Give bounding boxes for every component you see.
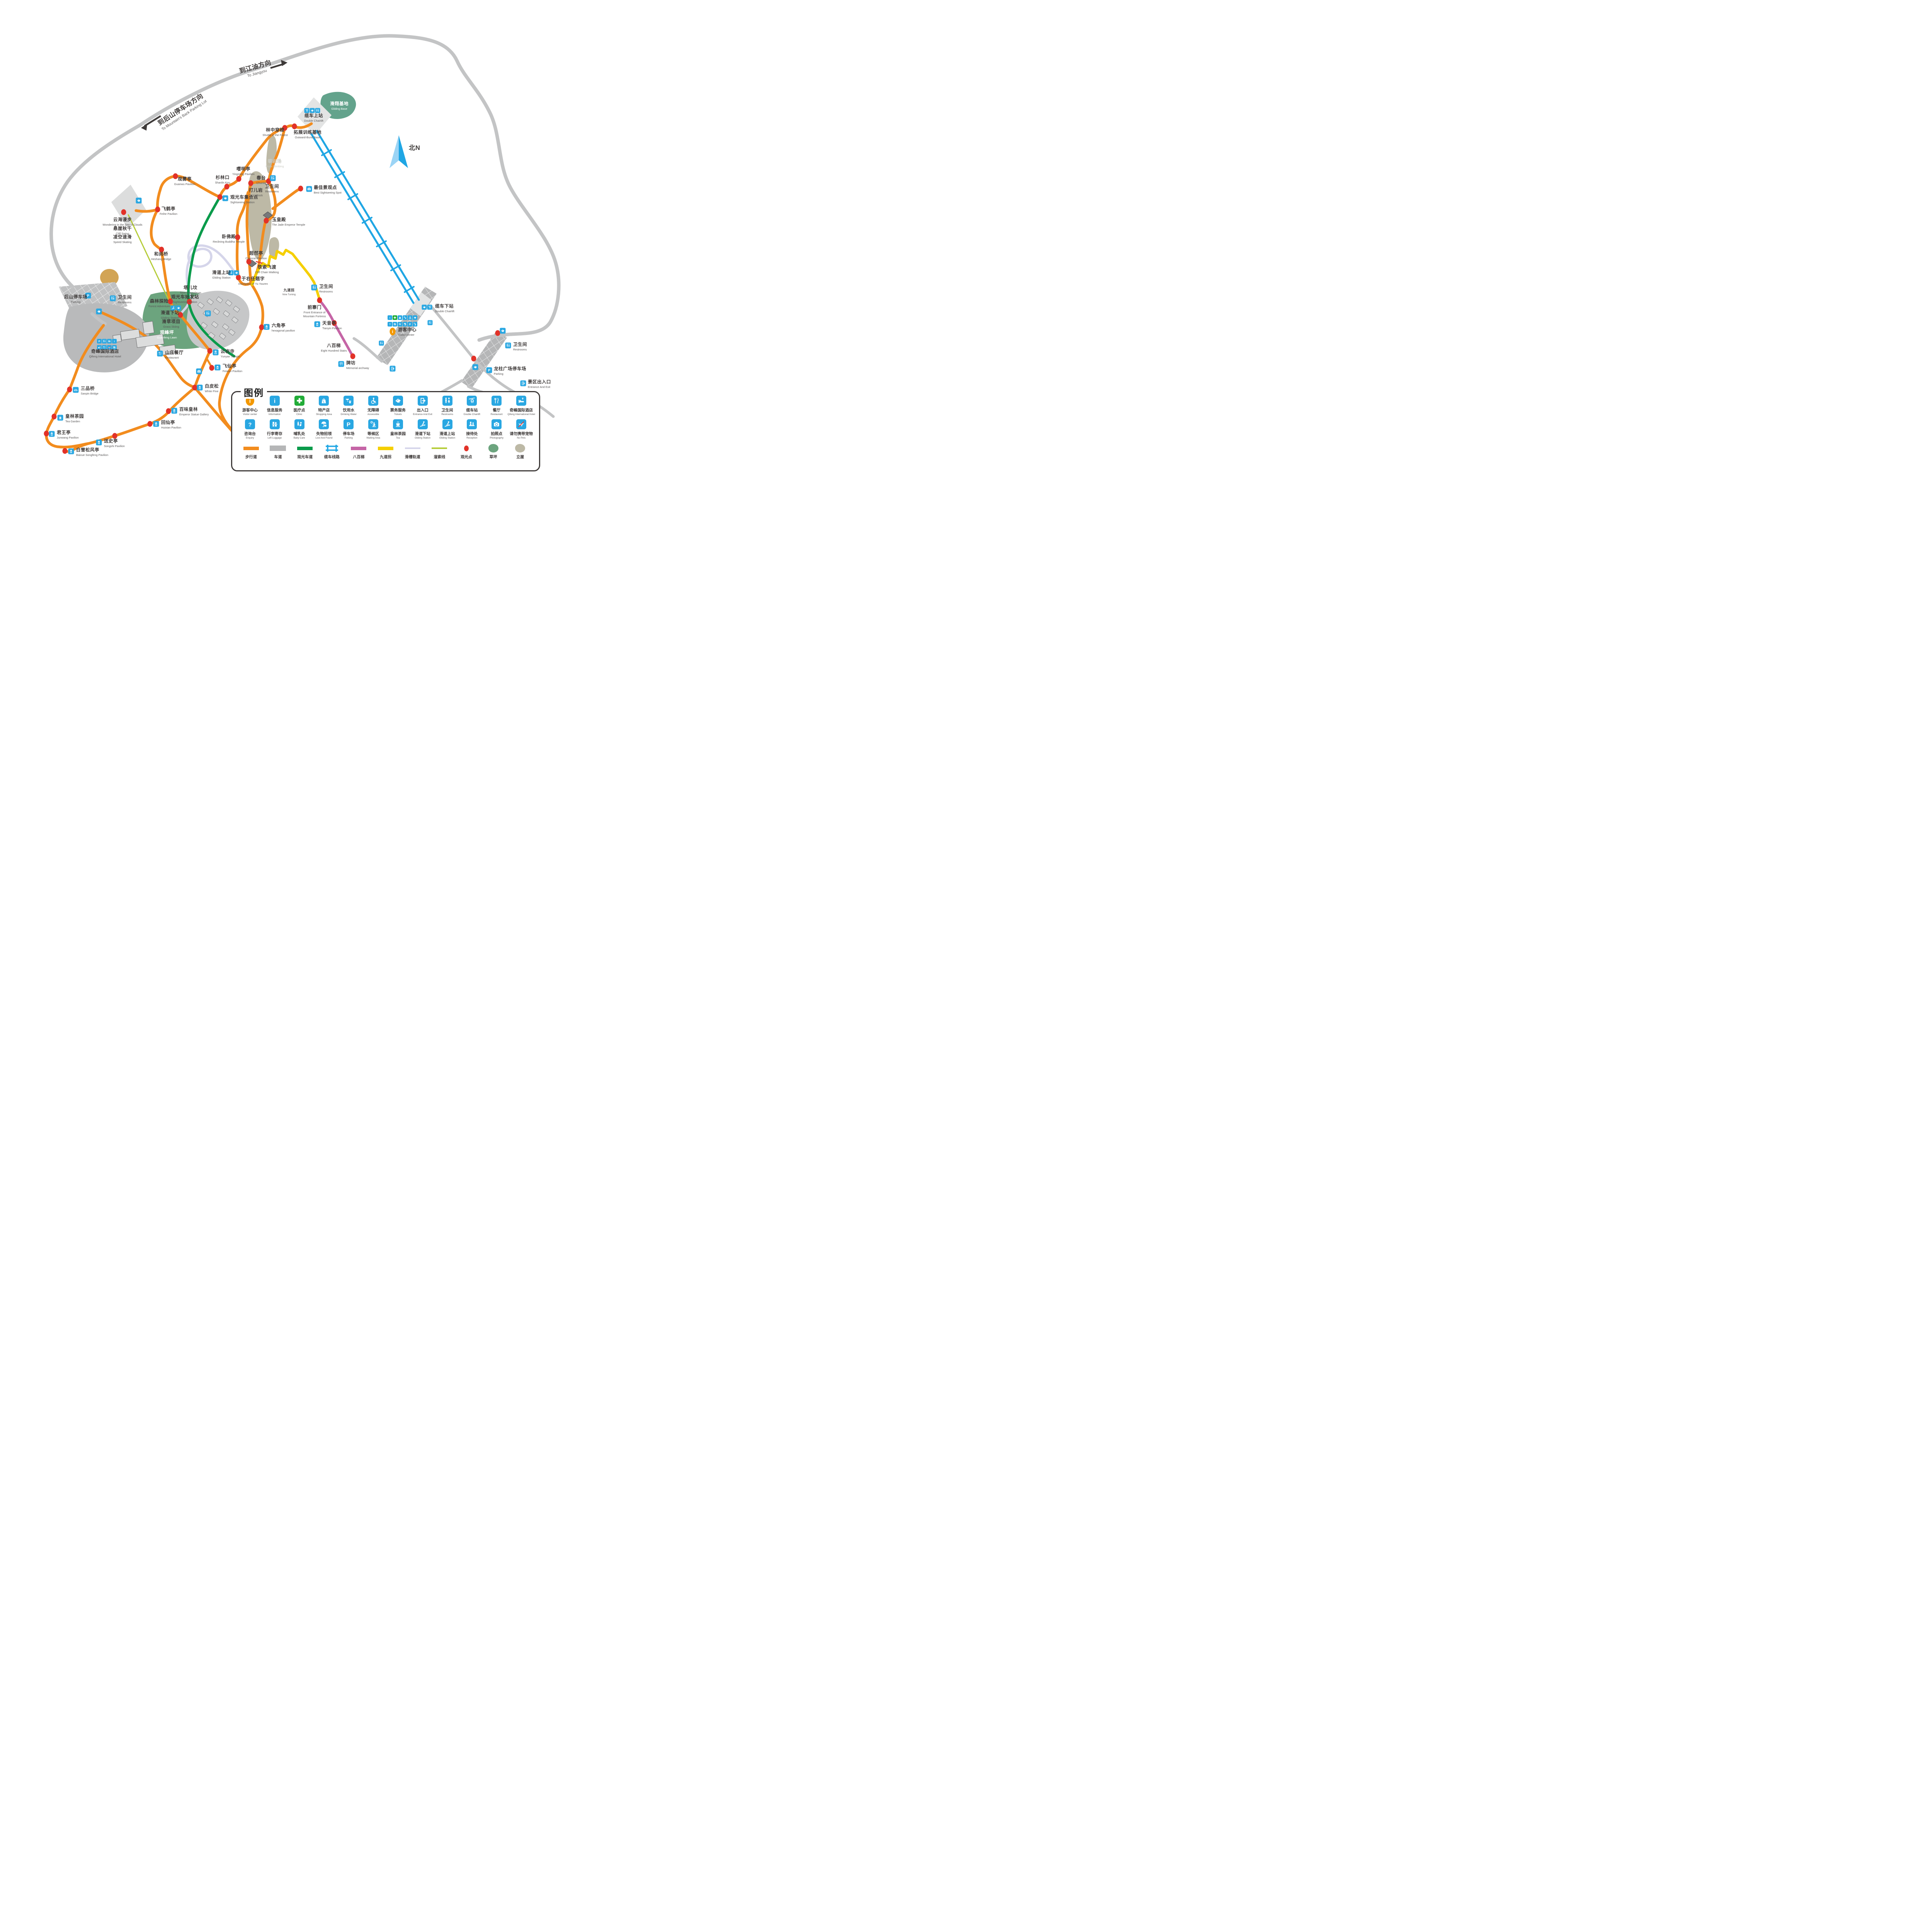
map-label: 滑草项目Grass Skiing [162, 319, 180, 328]
svg-text:杉林口: 杉林口 [216, 175, 230, 180]
restroom-icon[interactable] [505, 343, 511, 349]
map-label: 游客中心Visitor center [398, 327, 417, 337]
map-label: 滑道上站Gliding Station [212, 270, 231, 279]
chairlift-icon[interactable] [427, 305, 432, 310]
sightseeing-spot-dot[interactable] [63, 448, 68, 454]
legend-route-item: 八百梯 [345, 444, 372, 459]
lostfound-icon[interactable] [403, 322, 407, 327]
info-icon[interactable] [388, 315, 392, 320]
map-label: 卧佛殿Reclining Buddha Temple [213, 234, 245, 243]
legend-route-label: 步行道 [245, 454, 257, 459]
svg-text:Huixian Pavilion: Huixian Pavilion [161, 426, 181, 429]
chairlift-icon [467, 396, 477, 406]
svg-text:九道拐: 九道拐 [283, 288, 295, 292]
svg-text:塔儿坟: 塔儿坟 [184, 285, 197, 290]
svg-text:Guanfeng Lawn: Guanfeng Lawn [157, 336, 177, 339]
svg-text:拓展训练基地: 拓展训练基地 [294, 129, 321, 135]
svg-text:嘤明亭: 嘤明亭 [236, 166, 250, 172]
ticket-icon[interactable] [473, 364, 478, 370]
map-label: 六角亭hexagonal pavilion [272, 323, 295, 332]
legend-route-swatch [297, 444, 313, 452]
car-road-paifang-link [354, 338, 382, 361]
svg-text:Cliff Chain Walking: Cliff Chain Walking [255, 270, 279, 274]
svg-text:君王亭: 君王亭 [57, 430, 71, 435]
sightseeing-spot-dot[interactable] [166, 408, 171, 414]
legend-item-label: 游客中心 [242, 407, 258, 413]
svg-text:Ta'er Mausoleum: Ta'er Mausoleum [180, 291, 201, 294]
svg-text:三品桥: 三品桥 [81, 386, 95, 391]
svg-text:回仙亭: 回仙亭 [161, 420, 175, 425]
parking-icon[interactable] [486, 367, 492, 373]
parking-icon[interactable] [97, 339, 102, 344]
map-label: 滑道下站Gliding Station [161, 310, 179, 320]
svg-text:景区出入口: 景区出入口 [527, 379, 551, 384]
sightseeing-spot-dot[interactable] [112, 433, 117, 439]
reception-icon[interactable] [107, 339, 112, 344]
svg-text:牌坊: 牌坊 [346, 360, 355, 366]
reception-icon [467, 419, 477, 429]
svg-text:滑道下站: 滑道下站 [161, 310, 179, 315]
photo-icon[interactable] [306, 186, 312, 192]
legend-item-sublabel: Restrooms [441, 413, 453, 416]
legend-item: 出入口Entrance And Exit [410, 396, 435, 416]
legend-route-swatch [351, 444, 366, 452]
sightseeing-spot-dot[interactable] [192, 385, 197, 391]
legend-route-item: 草坪 [480, 444, 507, 459]
waiting-icon[interactable] [413, 322, 417, 327]
legend-item: 拍照点Photography [484, 419, 509, 439]
legend-route-swatch [488, 444, 498, 452]
legend-item-sublabel: Parking [345, 437, 353, 439]
map-label: 卫生间Restrooms [319, 284, 333, 293]
svg-text:Sanpin Bridge: Sanpin Bridge [81, 392, 99, 395]
map-label: 春台Chuntai [256, 175, 266, 185]
legend-item: 滑道下站Gliding Station [410, 419, 435, 439]
sightseeing-spot-dot[interactable] [67, 387, 72, 393]
svg-text:Mountain Fortress: Mountain Fortress [303, 315, 326, 318]
sightseeing-spot-dot[interactable] [148, 421, 153, 427]
restroom-icon[interactable] [270, 175, 276, 181]
sightseeing-spot-dot[interactable] [209, 365, 214, 371]
pavilion-icon[interactable] [315, 321, 320, 327]
ticket-icon[interactable] [500, 328, 506, 334]
legend-route-item: 立崖 [507, 444, 534, 459]
legend-route-item: 观光点 [453, 444, 480, 459]
legend-item: 行李寄存Left Luggage [262, 419, 287, 439]
sightseeing-spot-dot[interactable] [264, 218, 269, 224]
pavilion-icon[interactable] [215, 365, 221, 371]
tea-icon [393, 419, 403, 429]
legend-item-label: 滑道上站 [440, 430, 455, 436]
chairlift-icon[interactable] [304, 108, 310, 113]
parking-icon[interactable] [408, 322, 412, 327]
legend-item-sublabel: Enquiry [246, 437, 254, 439]
svg-text:后山停车场: 后山停车场 [64, 294, 87, 299]
svg-text:白雪松风亭: 白雪松风亭 [76, 447, 99, 452]
svg-text:Baixue Songfeng Pavilion: Baixue Songfeng Pavilion [76, 453, 108, 457]
ticket-icon[interactable] [96, 309, 102, 315]
glide-icon[interactable] [171, 306, 176, 311]
svg-text:八百梯: 八百梯 [327, 343, 341, 348]
legend-route-item: 观光车道 [291, 444, 318, 459]
map-label: 前寨门Front Entrance ofMountain Fortress [303, 304, 326, 318]
legend-route-swatch [432, 444, 447, 452]
sightseeing-spot-dot[interactable] [471, 356, 476, 362]
map-label: 九道拐Nine Turning [282, 288, 296, 296]
svg-text:飞仙亭: 飞仙亭 [223, 363, 236, 369]
legend-item-label: 医疗点 [294, 407, 305, 413]
legend-item: 缆车站Double Chairlift [459, 396, 484, 416]
legend-row-routes: 步行道车道观光车道 缆车线路八百梯九道拐滑槽轨道溜索线观光点草坪立崖 [232, 444, 539, 459]
legend-route-label: 车道 [274, 454, 282, 459]
map-label: 白雪松风亭Baixue Songfeng Pavilion [76, 447, 108, 457]
legend-route-item: 滑槽轨道 [399, 444, 426, 459]
legend-item: 接待处Reception [459, 419, 484, 439]
map-label: 缆车上站Double Chairlift [304, 113, 323, 122]
legend-item-sublabel: No Pets [517, 437, 526, 439]
legend-route-label: 缆车线路 [324, 454, 340, 459]
map-label: 凌空速滑Speed Skating [113, 234, 132, 244]
restroom-icon [442, 396, 452, 406]
legend-item-label: 票务服务 [390, 407, 406, 413]
question-icon[interactable] [388, 322, 392, 327]
legend-item-sublabel: Accessible [367, 413, 379, 416]
legend-item: 哺乳处Baby Care [287, 419, 312, 439]
restroom-icon[interactable] [205, 311, 211, 316]
sightseeing-spot-dot[interactable] [298, 186, 303, 192]
svg-text:Emperor Statue Gallery: Emperor Statue Gallery [179, 413, 209, 416]
pavilion-icon[interactable] [49, 431, 55, 437]
map-label: 最佳景观点Best Sightseeing Spot [314, 185, 342, 194]
legend-route-item: 九道拐 [372, 444, 399, 459]
sightseeing-spot-dot[interactable] [495, 330, 500, 336]
map-label: 送史亭Songshi Pavilion [104, 438, 125, 448]
svg-text:Shanlin Kou: Shanlin Kou [215, 181, 230, 184]
legend-route-label: 观光车道 [297, 454, 313, 459]
sightseeing-spot-dot[interactable] [218, 194, 223, 200]
legend-route-label: 九道拐 [380, 454, 391, 459]
svg-text:悬崖秋千: 悬崖秋千 [113, 226, 132, 231]
legend-route-swatch [243, 444, 259, 452]
restaurant-icon [492, 396, 502, 406]
map-label: 嘤明亭Yingming Pavilion [232, 166, 255, 176]
legend-item-label: 停车场 [343, 430, 354, 436]
waiting-icon [368, 419, 378, 429]
legend-route-label: 滑槽轨道 [405, 454, 420, 459]
exit-icon[interactable] [520, 381, 526, 386]
map-label: 卫生间Restrooms [265, 184, 279, 193]
legend-item: 饮用水Drinking Water [336, 396, 361, 416]
svg-text:云海漫步: 云海漫步 [113, 217, 132, 222]
svg-text:Guanwu Pavilion: Guanwu Pavilion [174, 182, 196, 186]
legend-item-sublabel: Double Chairlift [464, 413, 480, 416]
svg-text:Reclining Buddha Temple: Reclining Buddha Temple [213, 240, 245, 243]
restaurant-icon[interactable] [157, 351, 163, 357]
legend-item-label: 请勿携带宠物 [510, 430, 533, 436]
svg-text:观光车始发站: 观光车始发站 [171, 294, 199, 299]
ticket-icon[interactable] [234, 270, 239, 276]
legend-item-sublabel: Gliding Station [415, 437, 430, 439]
legend-item-sublabel: Entrance And Exit [413, 413, 432, 416]
svg-text:飞鹤亭: 飞鹤亭 [162, 206, 175, 211]
svg-text:Yunyan Temple: Yunyan Temple [221, 355, 240, 358]
sightseeing-spot-dot[interactable] [236, 275, 241, 281]
legend-item-label: 失物招领 [316, 430, 332, 436]
map-label: 奇峰国际酒店Qifeng International Hotel [89, 349, 121, 358]
svg-text:卫生间: 卫生间 [513, 342, 527, 347]
exit-icon[interactable] [390, 366, 396, 372]
svg-text:林中穿梭: 林中穿梭 [266, 127, 284, 133]
pavilion-icon[interactable] [264, 324, 270, 330]
map-label: 君王亭Junwang Pavilion [57, 430, 79, 439]
map-label: 牌坊Memorial archway [346, 360, 369, 370]
info-icon[interactable] [112, 339, 117, 344]
svg-text:Restrooms: Restrooms [265, 190, 279, 193]
svg-text:Double Chairlift: Double Chairlift [435, 310, 454, 313]
svg-text:缆车下站: 缆车下站 [435, 303, 454, 309]
svg-text:白皮松: 白皮松 [205, 383, 219, 389]
sightseeing-spot-dot[interactable] [207, 348, 213, 354]
legend-item-label: 餐厅 [493, 407, 500, 413]
ticket-icon[interactable] [422, 305, 427, 310]
map-label: 景区出入口Entrance And Exit [527, 379, 551, 389]
legend-item-sublabel: Gliding Station [439, 437, 455, 439]
ticket-icon[interactable] [310, 108, 315, 113]
map-label: 龙柱广场停车场Parking [493, 366, 526, 376]
svg-text:卫生间: 卫生间 [265, 184, 279, 189]
svg-text:Front Entrance of: Front Entrance of [304, 311, 326, 314]
luggage-icon[interactable] [393, 322, 397, 327]
map-label: 玉皇殿The Jade Emperor Temple [272, 217, 305, 226]
svg-text:Gliding Station: Gliding Station [212, 276, 230, 279]
svg-text:Songshi Pavilion: Songshi Pavilion [104, 444, 125, 448]
svg-text:皇林茶园: 皇林茶园 [65, 413, 84, 419]
legend-panel: 图例 游客中心Visitor center信息服务Information医疗点C… [231, 391, 540, 471]
svg-text:铁索飞渡: 铁索飞渡 [258, 264, 276, 270]
legend-route-swatch [405, 444, 420, 452]
map-label: 卫生间Restrooms [513, 342, 527, 351]
bag-icon[interactable] [398, 315, 402, 320]
sightseeing-spot-dot[interactable] [292, 124, 297, 129]
svg-text:Junwang Pavilion: Junwang Pavilion [57, 436, 79, 439]
temple-icon[interactable] [213, 350, 219, 355]
sightseeing-spot-dot[interactable] [350, 354, 355, 359]
bag-icon [319, 396, 329, 406]
compass-needle-left [389, 135, 399, 168]
restroom-icon[interactable] [315, 108, 320, 113]
cross-icon[interactable] [393, 315, 397, 320]
sightseeing-spot-dot[interactable] [236, 176, 241, 182]
legend-item-label: 滑道下站 [415, 430, 430, 436]
pavilion-icon[interactable] [68, 449, 74, 454]
svg-text:和尚桥: 和尚桥 [154, 251, 168, 257]
sightseeing-spot-dot[interactable] [259, 325, 264, 330]
svg-text:Speed Skating: Speed Skating [113, 240, 131, 244]
archway-icon[interactable] [338, 361, 344, 367]
legend-item-label: 出入口 [417, 407, 429, 413]
svg-text:打儿岩: 打儿岩 [249, 187, 263, 193]
legend-item-sublabel: Reception [466, 437, 477, 439]
restroom-icon[interactable] [311, 285, 317, 291]
svg-text:龙柱广场停车场: 龙柱广场停车场 [493, 366, 526, 371]
legend-item-sublabel: Photography [490, 437, 503, 439]
sightseeing-spot-dot[interactable] [44, 431, 49, 437]
map-label: 悬崖秋千Cliff Swing [113, 226, 132, 235]
pavilion-icon[interactable] [172, 408, 177, 414]
legend-item-label: 咨询台 [244, 430, 256, 436]
legend-item-label: 缆车站 [466, 407, 478, 413]
svg-text:Outward-Bund Base: Outward-Bund Base [295, 136, 320, 139]
map-label: 白皮松White Pine [205, 383, 219, 393]
legend-item-sublabel: Shopping Area [316, 413, 332, 416]
svg-text:观雾亭: 观雾亭 [178, 176, 192, 182]
sightseeing-spot-dot[interactable] [121, 209, 126, 215]
svg-text:卧佛殿: 卧佛殿 [222, 234, 236, 239]
svg-text:Shuttle in the Forest: Shuttle in the Forest [262, 133, 287, 137]
legend-item-label: 特产店 [318, 407, 330, 413]
photo-icon[interactable] [196, 369, 202, 374]
hotel-icon [516, 396, 526, 406]
svg-text:超然亭: 超然亭 [249, 250, 263, 256]
svg-text:游客中心: 游客中心 [398, 327, 417, 332]
legend-item-sublabel: Tea [396, 437, 400, 439]
legend-item: 请勿携带宠物No Pets [509, 419, 534, 439]
map-label: 到江油方向To Jiangyou [238, 58, 274, 80]
map-label: 百味皇林Emperor Statue Gallery [179, 406, 209, 416]
sightseeing-spot-dot[interactable] [52, 414, 57, 420]
svg-text:Heshang Bridge: Heshang Bridge [151, 257, 171, 261]
svg-text:山庄餐厅: 山庄餐厅 [165, 350, 184, 355]
lostfound-icon [319, 419, 329, 429]
accessible-icon[interactable] [408, 315, 412, 320]
svg-text:Inscription of Yu Youren: Inscription of Yu Youren [238, 282, 268, 286]
legend-item-sublabel: Drinking Water [341, 413, 357, 416]
legend-route-label: 溜索线 [434, 454, 445, 459]
legend-route-swatch [464, 444, 469, 452]
legend-item-label: 拍照点 [491, 430, 502, 436]
svg-text:滑草项目: 滑草项目 [162, 319, 180, 324]
legend-item-sublabel: Baby Care [294, 437, 305, 439]
svg-text:六角亭: 六角亭 [272, 323, 286, 328]
legend-route-item: 缆车线路 [318, 444, 345, 459]
legend-route-item: 车道 [265, 444, 292, 459]
svg-text:White Pine: White Pine [205, 389, 218, 393]
restroom-icon[interactable] [428, 320, 433, 325]
svg-text:奇峰国际酒店: 奇峰国际酒店 [91, 349, 119, 354]
svg-text:卫生间: 卫生间 [118, 294, 132, 300]
sightseeing-spot-dot[interactable] [224, 184, 230, 190]
water-icon[interactable] [403, 315, 407, 320]
exit-icon [418, 396, 428, 406]
legend-item: 失物招领Lost And Found [311, 419, 336, 439]
ticket-icon[interactable] [223, 196, 228, 201]
svg-text:Tea Garden: Tea Garden [65, 420, 80, 423]
legend-route-swatch [515, 444, 525, 452]
svg-text:北N: 北N [409, 144, 420, 151]
svg-text:Rock Climbing: Rock Climbing [265, 165, 284, 168]
legend-item: 咨询台Enquiry [238, 419, 262, 439]
svg-text:Feihe Pavilion: Feihe Pavilion [160, 212, 177, 216]
svg-text:Double Chairlift: Double Chairlift [304, 119, 323, 122]
pavilion-icon[interactable] [153, 421, 159, 427]
restroom-icon[interactable] [102, 339, 107, 344]
map-label: 滑翔基地Gliding Base [330, 101, 349, 111]
legend-item: 票务服务Tickets [386, 396, 410, 416]
ticket-icon[interactable] [136, 198, 142, 204]
ticket-icon[interactable] [176, 306, 181, 311]
map-label: 塔儿坟Ta'er Mausoleum [180, 285, 201, 294]
legend-item: 停车场Parking [336, 419, 361, 439]
svg-text:攀岩场: 攀岩场 [267, 158, 282, 164]
legend-item-sublabel: Tickets [394, 413, 402, 416]
visitor-icon[interactable] [389, 328, 395, 335]
map-label: 飞鹤亭Feihe Pavilion [160, 206, 177, 216]
ticket-icon[interactable] [413, 315, 417, 320]
sightseeing-spot-dot[interactable] [235, 235, 240, 240]
svg-text:Chuntai: Chuntai [256, 181, 266, 185]
baby-icon[interactable] [398, 322, 402, 327]
sightseeing-spot-dot[interactable] [248, 180, 253, 186]
legend-item: 等候区Waiting Area [361, 419, 386, 439]
svg-text:Sightseeing Station: Sightseeing Station [173, 300, 197, 304]
legend-item: 无障碍Accessible [361, 396, 386, 416]
water-icon [344, 396, 354, 406]
legend-item: 餐厅Restaurant [484, 396, 509, 416]
svg-text:Yingming Pavilion: Yingming Pavilion [232, 172, 255, 176]
tea-icon[interactable] [58, 415, 63, 421]
photo-icon [492, 419, 502, 429]
legend-item-label: 皇林茶园 [390, 430, 406, 436]
question-icon [245, 419, 255, 429]
pavilion-icon[interactable] [96, 440, 102, 446]
map-label: 拓展训练基地Outward-Bund Base [294, 129, 321, 139]
pavilion-icon[interactable] [197, 385, 203, 391]
legend-route-swatch [378, 444, 393, 452]
legend-route-label: 八百梯 [353, 454, 364, 459]
svg-text:Restrooms: Restrooms [118, 301, 132, 304]
svg-text:Wondering in the Sea of Clouds: Wondering in the Sea of Clouds [103, 223, 143, 226]
legend-route-item: 步行道 [238, 444, 265, 459]
legend-item: 皇林茶园Tea [386, 419, 410, 439]
legend-item: 卫生间Restrooms [435, 396, 460, 416]
legend-item-label: 哺乳处 [294, 430, 305, 436]
svg-text:Gliding Station: Gliding Station [161, 316, 179, 320]
svg-text:Forest Adventure: Forest Adventure [148, 304, 170, 308]
legend-item-label: 卫生间 [442, 407, 453, 413]
legend-item-label: 无障碍 [367, 407, 379, 413]
sightseeing-spot-dot[interactable] [155, 207, 160, 213]
legend-item-label: 奇峰国际酒店 [510, 407, 533, 413]
sightseeing-spot-dot[interactable] [317, 298, 322, 303]
svg-text:春台: 春台 [257, 175, 266, 180]
svg-text:Parking: Parking [71, 300, 81, 304]
svg-text:Sightseeing Station: Sightseeing Station [230, 201, 255, 204]
restroom-icon[interactable] [379, 341, 384, 346]
svg-text:Restrooms: Restrooms [513, 348, 527, 351]
svg-text:Feixian Pavilion: Feixian Pavilion [223, 369, 242, 373]
map-label: 缆车下站Double Chairlift [435, 303, 454, 313]
sightseeing-spot-dot[interactable] [173, 173, 178, 179]
bridge-icon[interactable] [73, 387, 79, 393]
legend-item-label: 行李寄存 [267, 430, 282, 436]
svg-text:Restrooms: Restrooms [319, 290, 333, 293]
svg-text:Eight Hundred Stairs: Eight Hundred Stairs [321, 349, 347, 352]
restroom-icon[interactable] [110, 296, 116, 301]
legend-item-sublabel: Qifeng International Hotel [507, 413, 535, 416]
map-label: 打儿岩Da'er Rock [249, 187, 263, 197]
nopets-icon [516, 419, 526, 429]
hotel-building [143, 321, 154, 334]
